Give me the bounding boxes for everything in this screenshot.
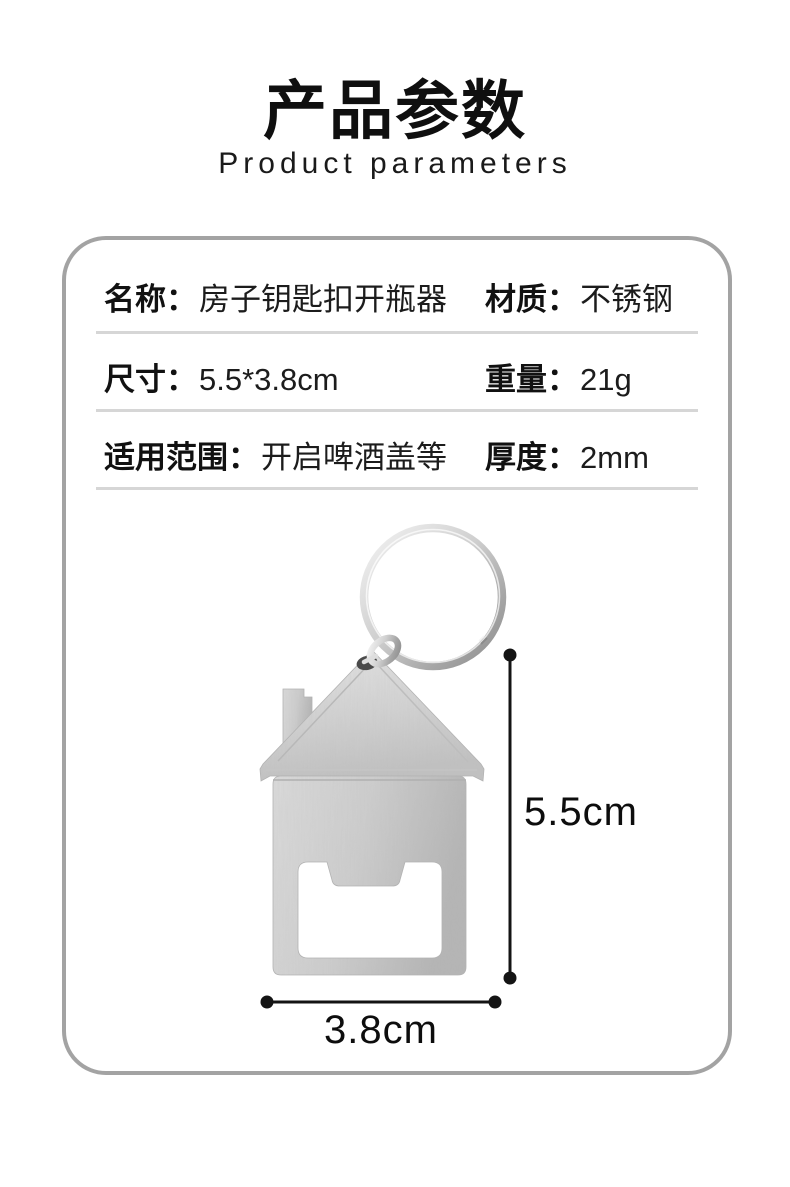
spec-pair-material: 材质： 不锈钢 — [485, 274, 673, 319]
table-row-scope-thickness: 适用范围： 开启啤酒盖等 厚度： 2mm — [96, 412, 698, 490]
spec-table: 名称： 房子钥匙扣开瓶器 材质： 不锈钢 尺寸： 5.5*3.8cm 重量： 2… — [96, 240, 698, 490]
page-subtitle: Product parameters — [0, 147, 790, 181]
material-label: 材质： — [485, 274, 578, 319]
page-title: 产品参数 — [0, 60, 790, 152]
house-opener-shape — [260, 650, 484, 975]
size-label: 尺寸： — [104, 354, 197, 399]
product-parameters-page: { "header": { "title": "产品参数", "subtitle… — [0, 0, 790, 1187]
weight-label: 重量： — [485, 354, 578, 399]
spec-pair-name: 名称： 房子钥匙扣开瓶器 — [96, 274, 485, 319]
height-dimension-label: 5.5cm — [524, 790, 638, 835]
thickness-value: 2mm — [580, 440, 649, 476]
width-dimension-label: 3.8cm — [281, 1008, 481, 1053]
spec-pair-scope: 适用范围： 开启啤酒盖等 — [96, 432, 485, 477]
keyring-connector-icon — [355, 633, 403, 672]
width-dimension-line — [261, 996, 502, 1009]
spec-pair-size: 尺寸： 5.5*3.8cm — [96, 354, 485, 399]
thickness-label: 厚度： — [485, 432, 578, 477]
table-row-name-material: 名称： 房子钥匙扣开瓶器 材质： 不锈钢 — [96, 240, 698, 334]
weight-value: 21g — [580, 362, 632, 398]
height-dimension-line — [504, 649, 517, 985]
spec-pair-weight: 重量： 21g — [485, 354, 632, 399]
name-value: 房子钥匙扣开瓶器 — [199, 274, 447, 319]
material-value: 不锈钢 — [580, 274, 673, 319]
name-label: 名称： — [104, 274, 197, 319]
size-value: 5.5*3.8cm — [199, 362, 339, 398]
scope-value: 开启啤酒盖等 — [261, 432, 447, 477]
spec-pair-thickness: 厚度： 2mm — [485, 432, 649, 477]
table-row-size-weight: 尺寸： 5.5*3.8cm 重量： 21g — [96, 334, 698, 412]
scope-label: 适用范围： — [104, 432, 259, 477]
keyring-icon — [364, 528, 502, 666]
product-image-house-keychain-bottle-opener — [230, 500, 540, 1020]
